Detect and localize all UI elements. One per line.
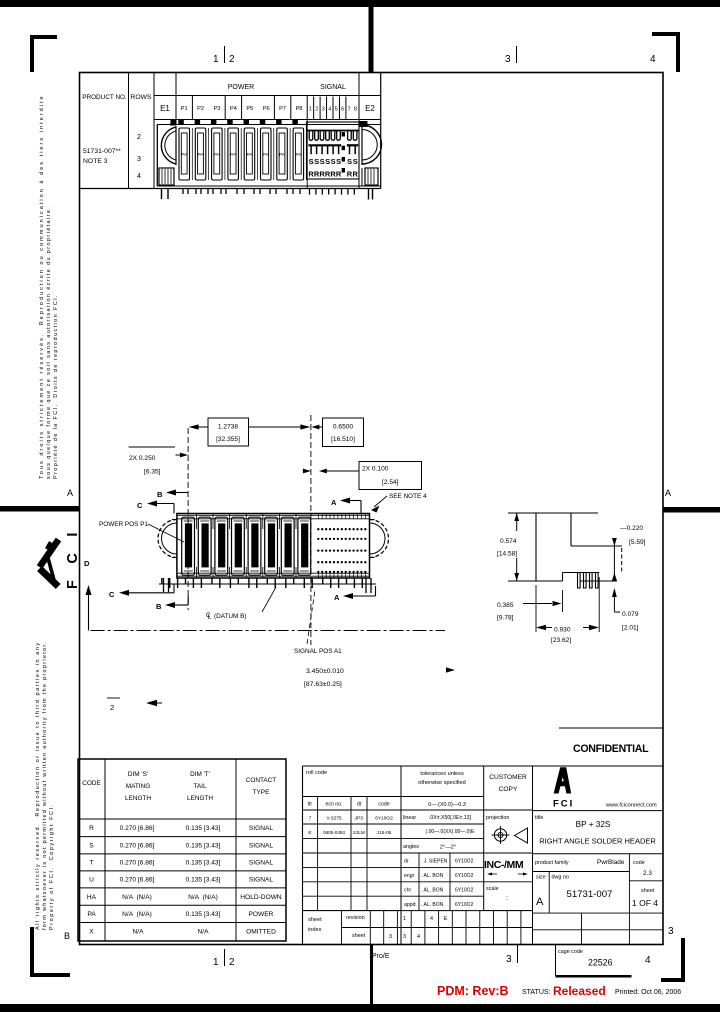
svg-text:PA: PA: [214, 152, 221, 158]
svg-text:3: 3: [322, 107, 325, 113]
svg-text:Pro/E: Pro/E: [372, 953, 390, 960]
svg-text:sheet: sheet: [308, 917, 322, 923]
svg-text:PA: PA: [198, 152, 205, 158]
svg-text:51731-007**: 51731-007**: [83, 148, 121, 155]
svg-text:PA: PA: [87, 911, 96, 918]
svg-text:SIGNAL: SIGNAL: [249, 860, 274, 867]
svg-text:ROWS: ROWS: [130, 94, 152, 101]
svg-text:code: code: [378, 802, 389, 808]
svg-text:2: 2: [137, 134, 141, 141]
svg-text:B: B: [64, 931, 70, 941]
svg-text:2JLM: 2JLM: [353, 830, 365, 836]
svg-text:3.450±0.010: 3.450±0.010: [306, 668, 344, 675]
svg-text:2: 2: [110, 703, 114, 712]
svg-text:SIGNAL: SIGNAL: [249, 825, 274, 832]
svg-text:3: 3: [389, 934, 392, 940]
svg-text:0.135 [3.43]: 0.135 [3.43]: [186, 843, 221, 850]
svg-text:CONTACT: CONTACT: [246, 777, 277, 784]
svg-text:N/A: N/A: [198, 929, 210, 936]
svg-text:7: 7: [348, 107, 351, 113]
svg-text:[16.510]: [16.510]: [331, 436, 355, 443]
svg-text:U: U: [89, 877, 94, 884]
svg-text:V-3275: V-3275: [326, 816, 342, 822]
svg-text:PDM: Rev:B: PDM: Rev:B: [437, 984, 509, 998]
svg-text:0.135 [3.43]: 0.135 [3.43]: [186, 877, 221, 884]
svg-text:dt: dt: [357, 802, 362, 808]
svg-text:(DATUM B): (DATUM B): [214, 613, 247, 620]
svg-text:Printed: Oct 06, 2006: Printed: Oct 06, 2006: [615, 989, 681, 996]
svg-text:PA: PA: [181, 152, 188, 158]
svg-text:[6.35]: [6.35]: [144, 469, 161, 476]
svg-text:dr: dr: [404, 859, 409, 865]
svg-text:0.135 [3.43]: 0.135 [3.43]: [186, 860, 221, 867]
svg-text:N/A: N/A: [133, 929, 145, 936]
svg-text:P1: P1: [181, 106, 188, 112]
svg-text:3: 3: [403, 934, 406, 940]
svg-text:N/A (N/A): N/A (N/A): [122, 911, 152, 918]
svg-text:4: 4: [645, 955, 651, 966]
svg-text::: :: [506, 895, 508, 902]
svg-text:3: 3: [668, 926, 674, 937]
svg-text:HA: HA: [87, 894, 97, 901]
svg-text:MATING: MATING: [126, 783, 150, 790]
svg-text:7: 7: [309, 816, 312, 822]
svg-text:S: S: [347, 157, 352, 166]
svg-text:[2.01]: [2.01]: [622, 625, 639, 632]
svg-text:0.270 [6.86]: 0.270 [6.86]: [120, 877, 155, 884]
svg-text:FCI: FCI: [553, 799, 574, 810]
svg-text:0.930: 0.930: [554, 627, 571, 634]
svg-text:title: title: [535, 815, 543, 821]
svg-text:PRODUCT NO.: PRODUCT NO.: [82, 94, 127, 101]
svg-text:[87.63±0.25]: [87.63±0.25]: [304, 681, 342, 688]
svg-text:SEE NOTE 4: SEE NOTE 4: [389, 493, 427, 500]
svg-text:2.3: 2.3: [643, 870, 652, 877]
svg-text:S: S: [320, 157, 325, 166]
svg-text:linear: linear: [403, 815, 416, 821]
svg-text:N/A (N/A): N/A (N/A): [188, 894, 218, 901]
svg-text:(.00—.0(XX).00—.0)E: (.00—.0(XX).00—.0)E: [426, 829, 476, 835]
svg-text:0605-0453: 0605-0453: [323, 830, 345, 835]
svg-text:R: R: [89, 825, 94, 832]
svg-text:X: X: [89, 929, 94, 936]
svg-text:DIM 'S': DIM 'S': [128, 771, 148, 778]
svg-text:NOTE 3: NOTE 3: [83, 158, 108, 165]
svg-text:[5.59]: [5.59]: [629, 539, 646, 546]
svg-text:POWER: POWER: [249, 911, 274, 918]
svg-text:1: 1: [309, 107, 312, 113]
svg-text:1: 1: [213, 957, 219, 968]
svg-text:4: 4: [417, 934, 420, 940]
svg-text:BP + 32S: BP + 32S: [576, 820, 611, 829]
svg-text:4: 4: [137, 173, 141, 180]
svg-text:S: S: [336, 157, 341, 166]
svg-text:3: 3: [505, 54, 511, 65]
svg-text:5: 5: [335, 107, 338, 113]
svg-text:POWER: POWER: [228, 84, 254, 91]
svg-text:0.270 [6.86]: 0.270 [6.86]: [120, 825, 155, 832]
svg-text:A: A: [334, 593, 340, 602]
svg-text:S: S: [353, 157, 358, 166]
svg-text:sous quelque forme que ce soit: sous quelque forme que ce soit sans auto…: [46, 206, 52, 479]
svg-text:0.270 [6.86]: 0.270 [6.86]: [120, 860, 155, 867]
svg-text:P5: P5: [246, 106, 253, 112]
svg-text:0.6500: 0.6500: [333, 424, 354, 431]
svg-text:PA: PA: [230, 152, 237, 158]
svg-text:RIGHT ANGLE SOLDER HEADER: RIGHT ANGLE SOLDER HEADER: [539, 837, 656, 846]
svg-text:6Y10O2: 6Y10O2: [455, 873, 474, 879]
svg-text:P3: P3: [214, 106, 221, 112]
svg-text:E2: E2: [365, 104, 375, 113]
svg-text:LENGTH: LENGTH: [125, 795, 151, 802]
svg-text:projection: projection: [486, 815, 509, 821]
svg-text:revision: revision: [346, 915, 365, 921]
svg-text:2: 2: [229, 54, 235, 65]
svg-text:angles: angles: [403, 844, 419, 850]
svg-text:6Y10O2: 6Y10O2: [455, 859, 474, 865]
svg-text:FCI: FCI: [65, 516, 81, 589]
svg-text:DIM 'T': DIM 'T': [190, 771, 210, 778]
svg-text:2X 0.100: 2X 0.100: [362, 466, 389, 473]
svg-text:E1: E1: [160, 104, 170, 113]
svg-text:S: S: [331, 157, 336, 166]
svg-text:0.270 [6.86]: 0.270 [6.86]: [120, 843, 155, 850]
svg-text:6Y10O2: 6Y10O2: [455, 902, 474, 908]
svg-text:[2.54]: [2.54]: [382, 479, 399, 486]
svg-text:51731-007: 51731-007: [567, 889, 613, 900]
svg-text:JPS: JPS: [355, 816, 364, 822]
svg-text:—0.220: —0.220: [620, 525, 643, 532]
svg-text:0.385: 0.385: [497, 602, 514, 609]
svg-text:PA: PA: [263, 152, 270, 158]
svg-text:B: B: [157, 490, 163, 499]
svg-text:ltr: ltr: [308, 802, 313, 808]
svg-text:6: 6: [341, 107, 344, 113]
svg-text:8: 8: [354, 107, 357, 113]
svg-text:T: T: [89, 860, 93, 867]
svg-text:[9.78]: [9.78]: [497, 615, 514, 622]
svg-text:SIGNAL: SIGNAL: [320, 84, 346, 91]
svg-text:P7: P7: [279, 106, 286, 112]
svg-text:[23.62]: [23.62]: [551, 637, 571, 644]
svg-text:C: C: [109, 590, 115, 599]
svg-text:A: A: [67, 488, 73, 498]
svg-text:N/A (N/A): N/A (N/A): [122, 894, 152, 901]
svg-text:6Y10O2: 6Y10O2: [375, 816, 393, 822]
svg-text:POWER POS P1: POWER POS P1: [99, 521, 148, 528]
svg-text:3: 3: [506, 954, 512, 965]
svg-text:2X 0.250: 2X 0.250: [129, 455, 156, 462]
svg-text:CUSTOMER: CUSTOMER: [489, 774, 527, 781]
svg-text:sheet: sheet: [641, 888, 655, 894]
svg-text:OMITTED: OMITTED: [246, 929, 276, 936]
svg-text:SIGNAL: SIGNAL: [249, 843, 274, 850]
svg-text:[14.58]: [14.58]: [497, 551, 517, 558]
svg-text:code: code: [633, 860, 645, 866]
svg-text:. AL. BON: . AL. BON: [421, 887, 444, 893]
svg-text:product family: product family: [535, 860, 569, 866]
svg-text:P8: P8: [296, 106, 303, 112]
svg-text:Property of FCI. Copyright FC: Property of FCI. Copyright FCI.: [49, 803, 55, 930]
svg-text:TAIL: TAIL: [193, 783, 206, 790]
svg-text:0.135 [3.43]: 0.135 [3.43]: [186, 911, 221, 918]
svg-text:INC-/MM: INC-/MM: [484, 859, 524, 871]
svg-text:SIGNAL: SIGNAL: [249, 877, 274, 884]
svg-text:form whatsoever is not permitt: form whatsoever is not permitted without…: [42, 641, 48, 930]
svg-text:index: index: [308, 927, 322, 933]
svg-text:P6: P6: [263, 106, 270, 112]
svg-text:HOLD-DOWN: HOLD-DOWN: [240, 894, 282, 901]
svg-text:ecn no.: ecn no.: [325, 802, 342, 808]
svg-text:0.079: 0.079: [622, 611, 639, 618]
svg-text:. J. SIEPEN: . J. SIEPEN: [421, 859, 448, 865]
svg-text:Tous droits strictement réserv: Tous droits strictement réservés. Reprod…: [39, 94, 45, 479]
svg-text:tolerances unless: tolerances unless: [420, 771, 464, 777]
svg-text:SIGNAL POS A1: SIGNAL POS A1: [294, 648, 342, 655]
svg-text:Propriété de la FCI. Droits d: Propriété de la FCI. Droits de reproduct…: [53, 294, 59, 479]
svg-text:PA: PA: [246, 152, 253, 158]
svg-text:3: 3: [137, 156, 141, 163]
svg-text:4: 4: [650, 54, 656, 65]
svg-text:E: E: [308, 830, 311, 836]
svg-text:scale: scale: [486, 886, 499, 892]
svg-text:S: S: [314, 157, 319, 166]
svg-text:[32.355]: [32.355]: [216, 436, 240, 443]
svg-text:P4: P4: [230, 106, 237, 112]
svg-text:.0X±.X50[.0E±.13]: .0X±.X50[.0E±.13]: [429, 815, 472, 821]
svg-text:www.fciconnect.com: www.fciconnect.com: [605, 803, 657, 809]
svg-text:otherwise specified: otherwise specified: [418, 780, 466, 786]
svg-text:2°—2°: 2°—2°: [440, 845, 456, 851]
svg-text:L: L: [208, 614, 212, 621]
svg-text:2: 2: [229, 957, 235, 968]
svg-text:CONFIDENTIAL: CONFIDENTIAL: [573, 743, 649, 755]
svg-text:4: 4: [328, 107, 331, 113]
svg-text:2: 2: [315, 107, 318, 113]
svg-text:roll code: roll code: [306, 770, 327, 776]
svg-text:STATUS:: STATUS:: [522, 989, 551, 996]
svg-text:appd: appd: [404, 902, 416, 908]
svg-text:. AL. BON: . AL. BON: [421, 873, 444, 879]
svg-text:cage code: cage code: [558, 949, 583, 955]
svg-text:A: A: [665, 488, 671, 498]
svg-text:sheet: sheet: [352, 933, 366, 939]
svg-text:S: S: [89, 843, 94, 850]
svg-text:TYPE: TYPE: [253, 789, 270, 796]
svg-text:P2: P2: [197, 106, 204, 112]
svg-text:C: C: [137, 501, 143, 510]
svg-text:size: size: [536, 875, 546, 881]
svg-text:dwg no: dwg no: [552, 875, 569, 881]
svg-text:CODE: CODE: [82, 780, 100, 787]
svg-text:0.574: 0.574: [500, 538, 517, 545]
svg-text:S: S: [325, 157, 330, 166]
svg-text:R: R: [352, 170, 358, 179]
svg-text:22526: 22526: [588, 958, 613, 968]
svg-text:1.2738: 1.2738: [218, 424, 239, 431]
svg-text:0.135 [3.43]: 0.135 [3.43]: [186, 825, 221, 832]
svg-text:J15-05: J15-05: [377, 830, 392, 836]
svg-text:B: B: [156, 602, 162, 611]
svg-text:. AL. BON: . AL. BON: [421, 902, 444, 908]
svg-text:COPY: COPY: [499, 786, 518, 793]
svg-text:1 OF 4: 1 OF 4: [632, 898, 658, 908]
svg-text:A: A: [536, 896, 544, 908]
svg-text:1: 1: [403, 916, 406, 922]
svg-text:0—.(X0.0)—0.3: 0—.(X0.0)—0.3: [428, 802, 465, 808]
svg-text:PwrBlade: PwrBlade: [597, 859, 625, 866]
svg-text:engr: engr: [404, 873, 415, 879]
svg-text:D: D: [84, 559, 90, 568]
svg-text:1: 1: [213, 54, 219, 65]
svg-text:A: A: [331, 498, 337, 507]
svg-text:E: E: [444, 916, 448, 922]
svg-text:Released: Released: [553, 984, 606, 998]
svg-text:S: S: [309, 157, 314, 166]
svg-text:PA: PA: [295, 152, 302, 158]
svg-text:All rights strictly reserved.: All rights strictly reserved. Reproducti…: [35, 641, 41, 930]
svg-text:LENGTH: LENGTH: [187, 795, 213, 802]
svg-text:4: 4: [430, 916, 433, 922]
svg-text:PA: PA: [279, 152, 286, 158]
svg-text:6Y10O2: 6Y10O2: [455, 887, 474, 893]
svg-text:chr: chr: [404, 887, 411, 893]
svg-text:R: R: [336, 170, 342, 179]
